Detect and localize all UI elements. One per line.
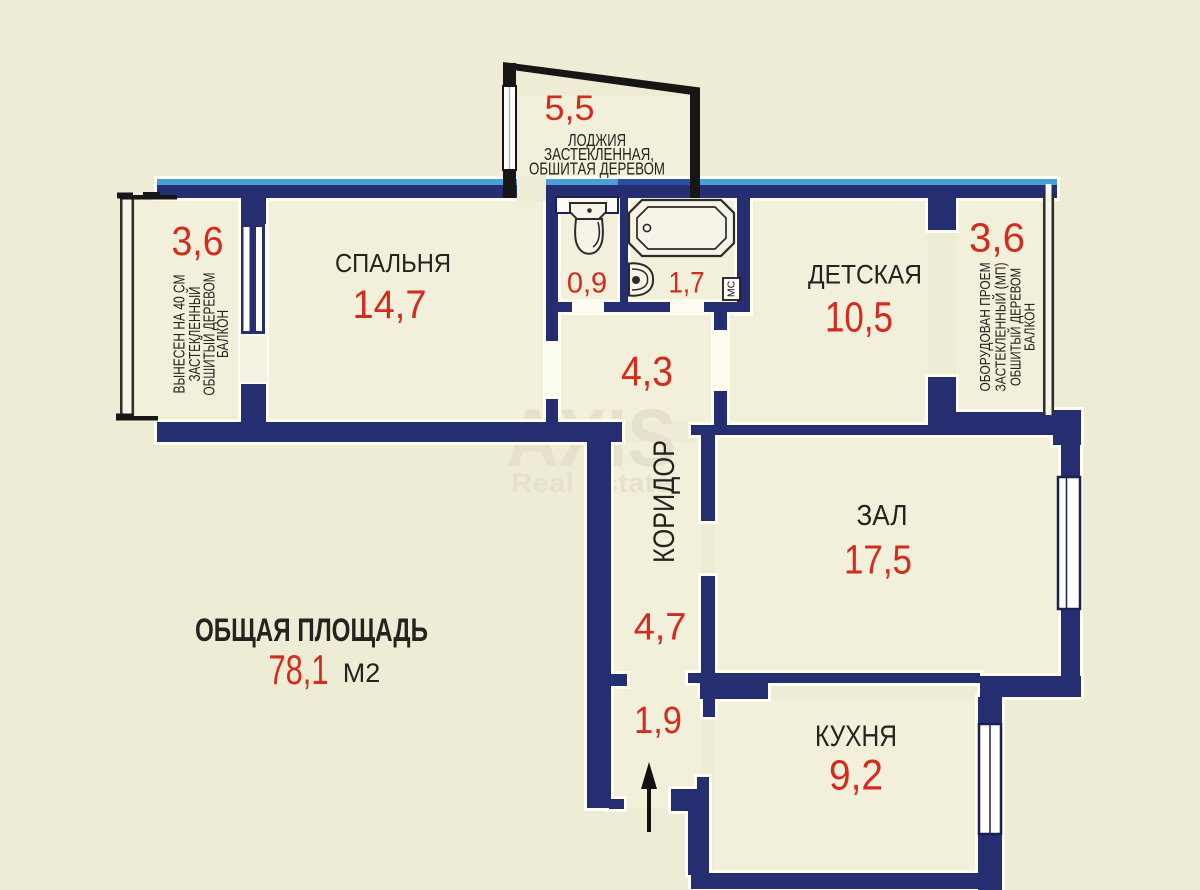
svg-text:4,3: 4,3 — [621, 348, 673, 395]
svg-text:М2: М2 — [343, 658, 381, 688]
svg-text:78,1: 78,1 — [269, 646, 329, 693]
svg-text:14,7: 14,7 — [353, 283, 427, 327]
svg-text:ВЫНЕСЕН НА 40 СМ: ВЫНЕСЕН НА 40 СМ — [172, 275, 189, 394]
svg-text:17,5: 17,5 — [844, 537, 912, 583]
svg-text:КОРИДОР: КОРИДОР — [648, 440, 681, 563]
svg-text:ОБЩАЯ ПЛОЩАДЬ: ОБЩАЯ ПЛОЩАДЬ — [195, 612, 428, 648]
svg-text:СПАЛЬНЯ: СПАЛЬНЯ — [335, 248, 451, 278]
svg-text:4,7: 4,7 — [634, 607, 687, 649]
svg-text:БАЛКОН: БАЛКОН — [1022, 303, 1039, 351]
svg-text:ОБОРУДОВАН ПРОЕМ: ОБОРУДОВАН ПРОЕМ — [977, 263, 994, 392]
svg-text:КУХНЯ: КУХНЯ — [815, 720, 897, 753]
svg-text:ОБШИТАЯ ДЕРЕВОМ: ОБШИТАЯ ДЕРЕВОМ — [529, 159, 665, 179]
svg-text:1,9: 1,9 — [634, 700, 682, 742]
svg-text:ДЕТСКАЯ: ДЕТСКАЯ — [808, 260, 922, 290]
svg-text:ЗАЛ: ЗАЛ — [857, 500, 908, 532]
svg-text:0,9: 0,9 — [567, 268, 607, 300]
svg-text:1,7: 1,7 — [669, 267, 705, 300]
svg-text:9,2: 9,2 — [829, 752, 883, 800]
svg-text:МС: МС — [726, 280, 738, 297]
svg-text:3,6: 3,6 — [172, 218, 224, 264]
svg-text:5,5: 5,5 — [545, 89, 595, 128]
svg-text:3,6: 3,6 — [969, 215, 1025, 261]
svg-text:10,5: 10,5 — [825, 294, 893, 342]
svg-text:БАЛКОН: БАЛКОН — [215, 310, 232, 358]
